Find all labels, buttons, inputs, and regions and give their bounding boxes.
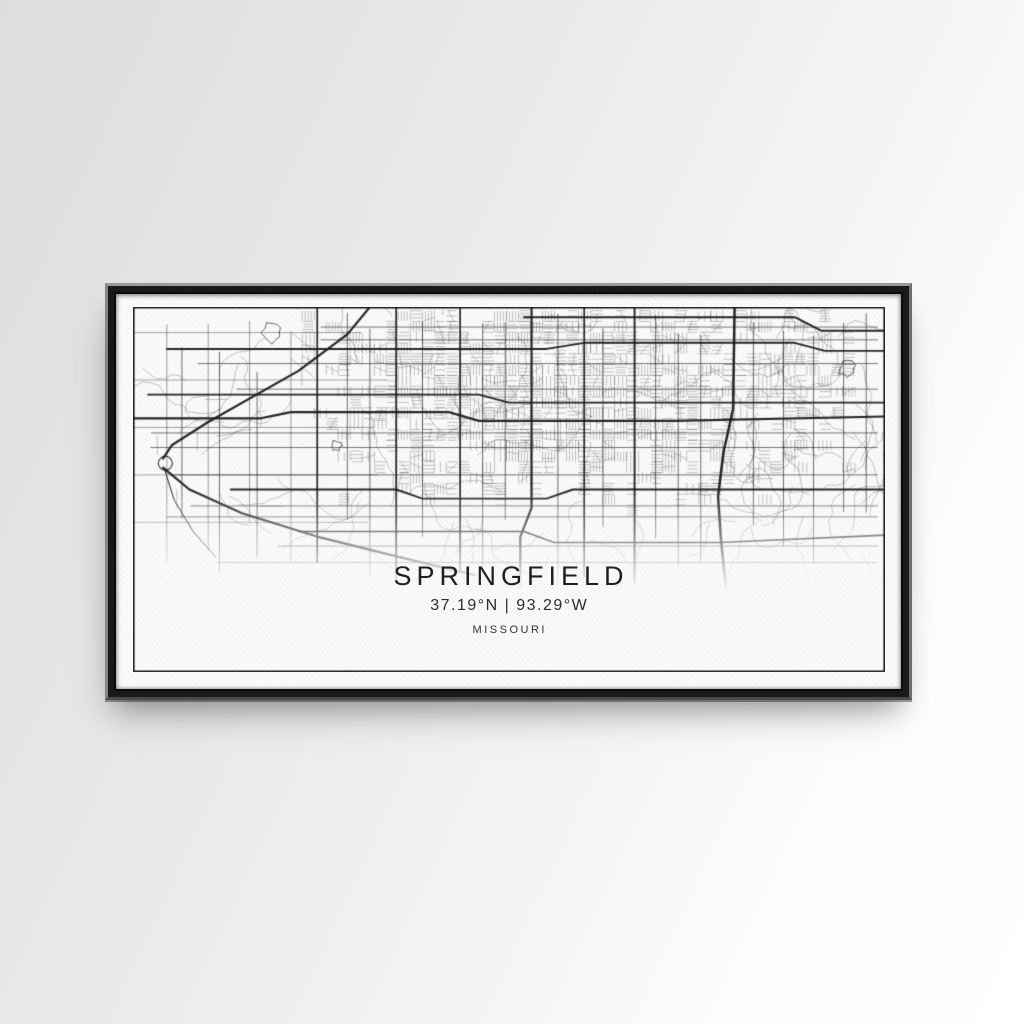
map-region: MISSOURI [116,624,901,636]
wall: SPRINGFIELD 37.19°N | 93.29°W MISSOURI [0,0,1024,1024]
picture-frame: SPRINGFIELD 37.19°N | 93.29°W MISSOURI [105,283,912,700]
map-legend: SPRINGFIELD 37.19°N | 93.29°W MISSOURI [116,562,901,636]
map-coordinates: 37.19°N | 93.29°W [116,597,901,615]
art-canvas: SPRINGFIELD 37.19°N | 93.29°W MISSOURI [116,294,901,689]
map-title: SPRINGFIELD [116,562,901,592]
